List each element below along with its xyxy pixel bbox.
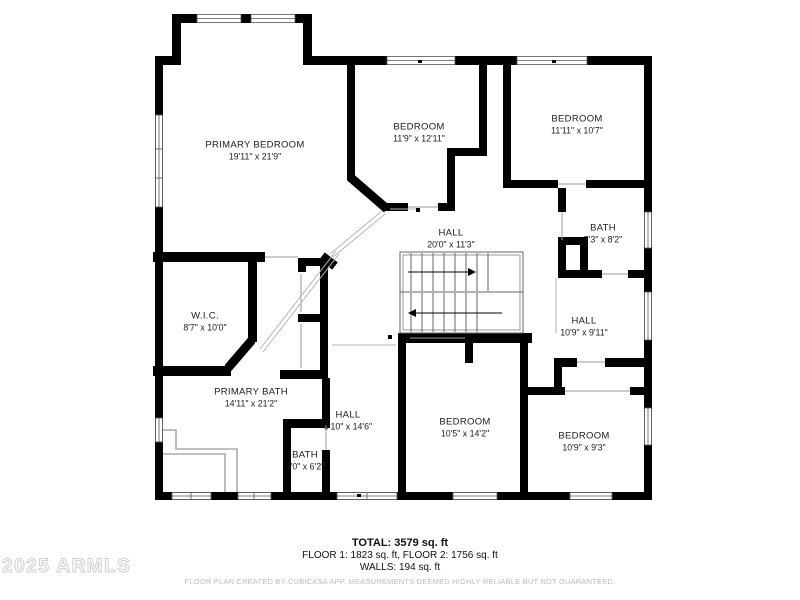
room-label-bedroom-top-center: BEDROOM 11'9" x 12'11" xyxy=(393,122,445,145)
room-label-bedroom-bottom-center: BEDROOM 10'5" x 14'2" xyxy=(439,417,490,440)
room-separators xyxy=(260,209,556,352)
room-label-primary-bedroom: PRIMARY BEDROOM 19'11" x 21'9" xyxy=(205,140,304,163)
window xyxy=(172,493,211,500)
room-label-bedroom-bottom-right: BEDROOM 10'9" x 9'3" xyxy=(558,431,609,454)
window xyxy=(156,418,163,442)
window xyxy=(156,115,163,207)
window xyxy=(570,493,612,500)
armls-watermark: 2025 ARMLS xyxy=(2,556,131,578)
window xyxy=(251,15,295,23)
window xyxy=(645,212,652,248)
window xyxy=(197,15,241,23)
room-label-bath-bottom: BATH 3'0" x 6'2" xyxy=(286,450,324,473)
room-label-bath-right: BATH 7'3" x 8'2" xyxy=(584,223,622,246)
window xyxy=(453,493,497,500)
room-label-wic: W.I.C. 8'7" x 10'0" xyxy=(183,311,226,334)
floor-plan-svg xyxy=(0,0,800,530)
window xyxy=(645,408,652,445)
room-label-hall-center: HALL 20'0" x 11'3" xyxy=(427,228,475,251)
window xyxy=(645,292,652,340)
window xyxy=(337,493,397,500)
bath-fixtures xyxy=(163,430,237,492)
window xyxy=(238,493,271,500)
room-label-hall-right: HALL 10'9" x 9'11" xyxy=(560,316,608,339)
total-area: TOTAL: 3579 sq. ft xyxy=(0,537,800,549)
room-label-hall-bottom: HALL 6'10" x 14'6" xyxy=(324,410,372,433)
room-label-bedroom-top-right: BEDROOM 11'11" x 10'7" xyxy=(551,114,603,137)
disclaimer-text: FLOOR PLAN CREATED BY CUBICASA APP. MEAS… xyxy=(0,577,800,586)
staircase xyxy=(400,252,523,333)
room-label-primary-bath: PRIMARY BATH 14'11" x 21'2" xyxy=(214,387,288,410)
floor-plan-page: PRIMARY BEDROOM 19'11" x 21'9" BEDROOM 1… xyxy=(0,0,800,600)
